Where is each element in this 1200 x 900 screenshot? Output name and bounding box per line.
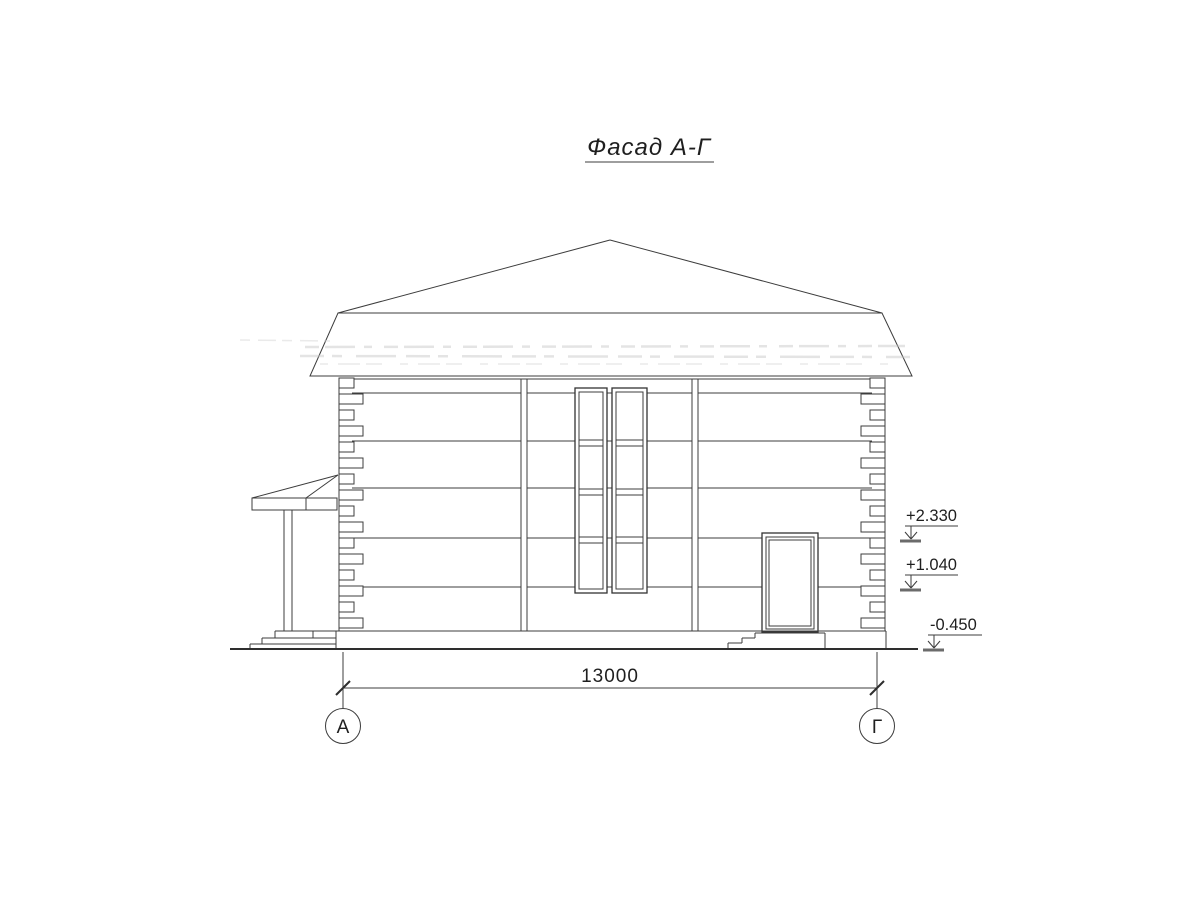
roof-fascia-band	[310, 313, 912, 376]
drawing-sheet: Фасад А-Г	[0, 0, 1200, 900]
elevation-mark-0450: -0.450	[923, 616, 982, 650]
elevation-mark-2330: +2.330	[900, 507, 958, 541]
roof-hip-left	[338, 240, 610, 313]
canopy-fascia	[252, 498, 337, 510]
dimension-value: 13000	[581, 666, 639, 687]
porch-steps	[250, 631, 339, 649]
window-left	[575, 388, 607, 593]
facade-elevation-drawing: Фасад А-Г	[0, 0, 1200, 900]
entrance-door	[762, 533, 818, 632]
log-corner-right	[861, 378, 885, 628]
drawing-title-block: Фасад А-Г	[585, 134, 714, 162]
porch	[250, 475, 339, 649]
dimension-line: 13000	[336, 652, 884, 708]
drawing-title: Фасад А-Г	[587, 134, 712, 161]
elevation-value: -0.450	[930, 616, 977, 634]
porch-post	[284, 510, 292, 631]
plinth	[336, 631, 886, 649]
canopy-ridge-line	[306, 475, 338, 498]
elevation-value: +1.040	[906, 556, 957, 574]
axis-label-g: Г	[872, 717, 882, 738]
axis-label-a: А	[337, 717, 350, 738]
log-corner-left	[339, 378, 363, 628]
wall-post-right	[692, 379, 698, 631]
wall-post-left	[521, 379, 527, 631]
door-steps	[728, 633, 825, 649]
elevation-mark-1040: +1.040	[900, 556, 958, 590]
window-right	[612, 388, 647, 593]
axis-marker-g: Г	[860, 709, 895, 744]
roof	[240, 240, 912, 376]
roof-hip-right	[610, 240, 882, 313]
canopy-hip-line	[252, 475, 338, 498]
elevation-value: +2.330	[906, 507, 957, 525]
axis-marker-a: А	[326, 709, 361, 744]
